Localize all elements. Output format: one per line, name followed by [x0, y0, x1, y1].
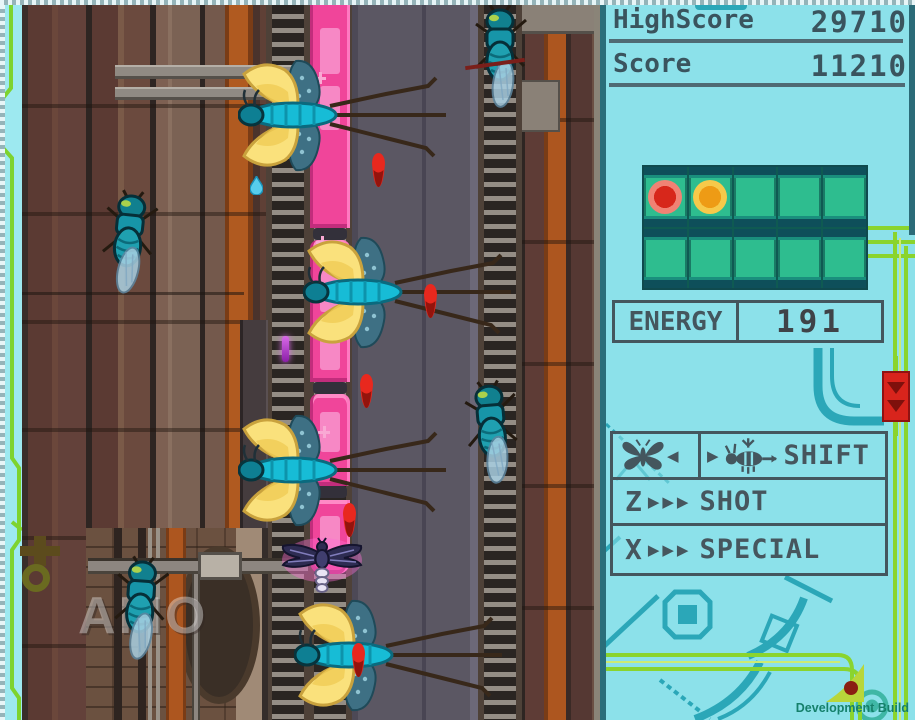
score-value: 11210 [811, 49, 908, 83]
energy-cell-grid [642, 165, 868, 290]
shot-label: SHOT [699, 486, 768, 517]
bullet [424, 284, 437, 318]
energy-cell [689, 167, 732, 227]
score-row: Score 11210 [613, 49, 908, 83]
car-coupling [313, 382, 347, 394]
controls-panel: ◀ ▶ SHIFT [610, 431, 888, 576]
orange-indicator [693, 180, 727, 214]
bullet [372, 153, 385, 187]
red-indicator [648, 180, 682, 214]
score-label: Score [613, 49, 691, 79]
highscore-value: 29710 [811, 5, 908, 39]
highscore-label: HighScore [613, 5, 754, 35]
energy-cell [778, 167, 821, 227]
gear-icon [22, 564, 50, 592]
special-arrows-icon: ▶▶▶ [648, 541, 692, 559]
special-key: X [625, 533, 642, 566]
water-droplet-icon [250, 176, 263, 195]
energy-value: 191 [739, 303, 881, 340]
enemy-fly [460, 378, 527, 488]
enemy-bee [294, 598, 504, 713]
circuit-board-background [600, 0, 915, 720]
gameplay-viewport[interactable]: AMO [0, 0, 600, 720]
shot-key: Z [625, 485, 642, 518]
dev-build-label: Development Build [796, 701, 909, 715]
dark-line [262, 528, 268, 720]
player-ship [280, 532, 364, 596]
energy-cell [734, 167, 777, 227]
enemy-fly [95, 187, 164, 297]
shift-left-cell: ◀ [619, 434, 701, 477]
hud-right-edge [909, 0, 915, 235]
bullet [360, 374, 373, 408]
energy-cell [644, 167, 687, 227]
pipe-connector [198, 552, 242, 580]
hud-left-border [600, 0, 606, 720]
game-screen: AMO [0, 0, 915, 720]
special-control-row: X ▶▶▶ SPECIAL [613, 526, 885, 573]
highscore-row: HighScore 29710 [613, 5, 908, 39]
checkered-border-left [0, 5, 5, 720]
energy-cell [778, 229, 821, 289]
bullet [343, 503, 356, 537]
hud-panel: HighScore 29710 Score 11210 ENERGY 191 [600, 0, 915, 720]
enemy-bee [238, 58, 448, 173]
purple-bullet [282, 336, 289, 362]
shot-arrows-icon: ▶▶▶ [648, 493, 692, 511]
left-arrow-icon: ◀ [667, 447, 682, 465]
butterfly-icon [621, 437, 665, 475]
enemy-fly [472, 4, 530, 109]
checkered-border-top [0, 0, 915, 5]
shift-label: SHIFT [784, 440, 870, 471]
energy-meter: ENERGY 191 [612, 300, 884, 343]
circuit-cross-node-icon [20, 536, 60, 566]
energy-cell [689, 229, 732, 289]
shift-right-cell: ▶ SHIFT [701, 434, 879, 477]
shift-control-row: ◀ ▶ SHIFT [613, 434, 885, 480]
divider [609, 39, 903, 43]
energy-label: ENERGY [615, 303, 739, 340]
energy-cell [823, 167, 866, 227]
enemy-bee [303, 235, 513, 350]
bee-icon [724, 436, 778, 476]
energy-cell [644, 229, 687, 289]
energy-cell [734, 229, 777, 289]
right-arrow-icon: ▶ [707, 447, 722, 465]
energy-cell [823, 229, 866, 289]
divider [609, 83, 905, 87]
shot-control-row: Z ▶▶▶ SHOT [613, 480, 885, 526]
enemy-fly [108, 554, 173, 663]
bullet [352, 643, 365, 677]
special-label: SPECIAL [699, 534, 820, 565]
